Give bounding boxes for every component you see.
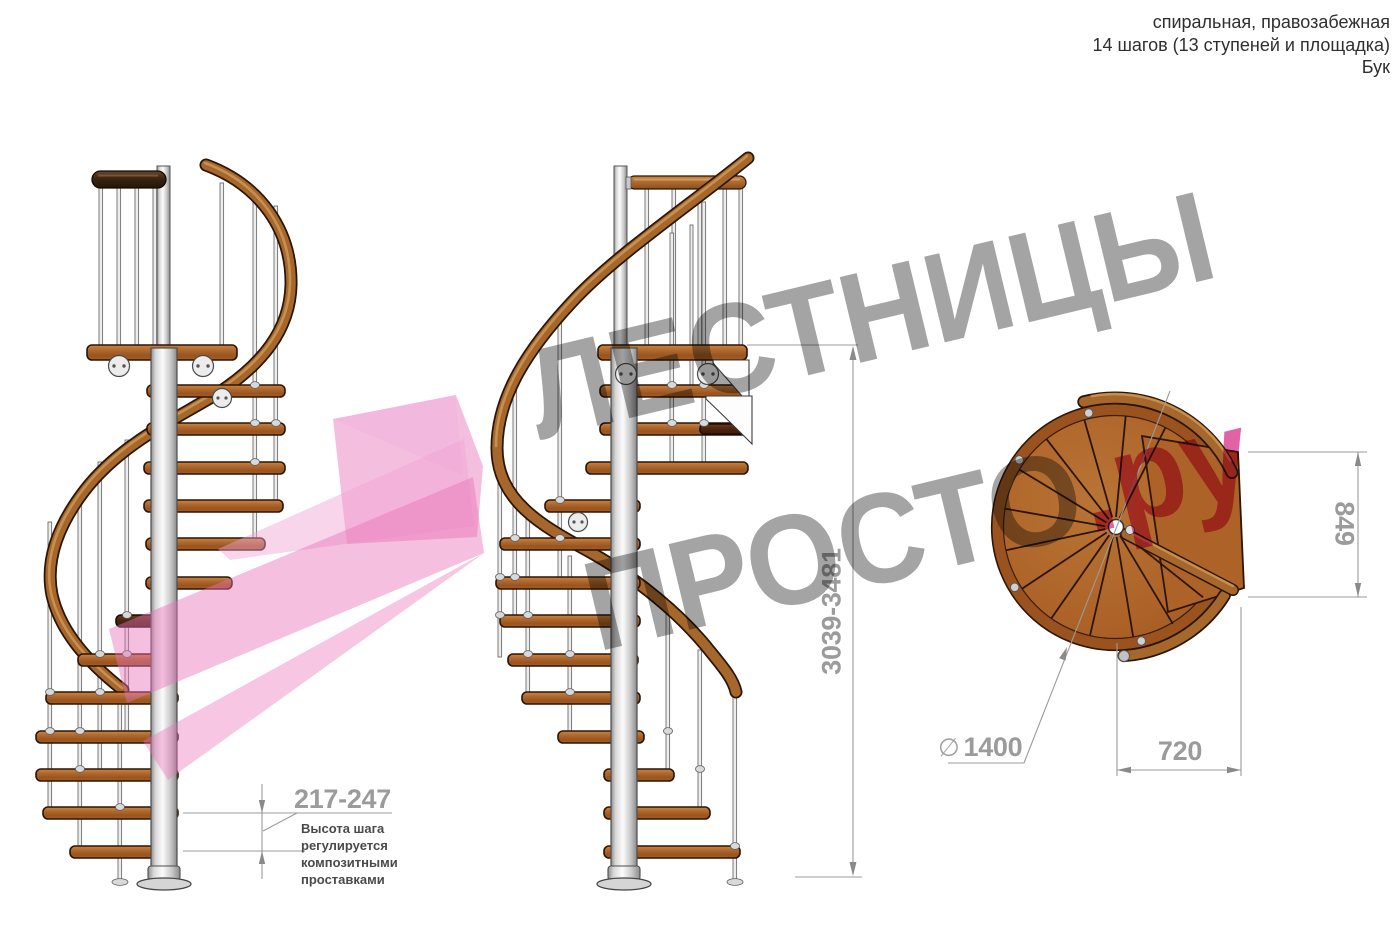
dim-step-height: 217-247 [294, 784, 391, 815]
diameter-value: 1400 [963, 732, 1022, 762]
title-type: спиральная, правозабежная [1092, 11, 1390, 34]
technical-drawing-page: { "title_block": { "line1": "спиральная,… [0, 0, 1400, 941]
side-view-front [36, 163, 291, 890]
title-material: Бук [1092, 56, 1390, 79]
diameter-icon: ∅ [938, 734, 963, 762]
note-line: Высота шага [301, 820, 398, 837]
dim-plan-depth: 849 [1329, 424, 1360, 624]
dim-diameter: ∅1400 [938, 732, 1022, 763]
title-block: спиральная, правозабежная 14 шагов (13 с… [1092, 11, 1390, 79]
platform-handrail [92, 171, 166, 188]
step-height-note: Высота шага регулируется композитными пр… [301, 820, 398, 888]
dim-plan-width: 720 [1128, 736, 1232, 767]
note-line: регулируется [301, 837, 398, 854]
title-steps: 14 шагов (13 ступеней и площадка) [1092, 34, 1390, 57]
note-line: проставками [301, 871, 398, 888]
platform-balusters [99, 188, 157, 346]
column-upper [157, 166, 170, 348]
note-line: композитными [301, 854, 398, 871]
